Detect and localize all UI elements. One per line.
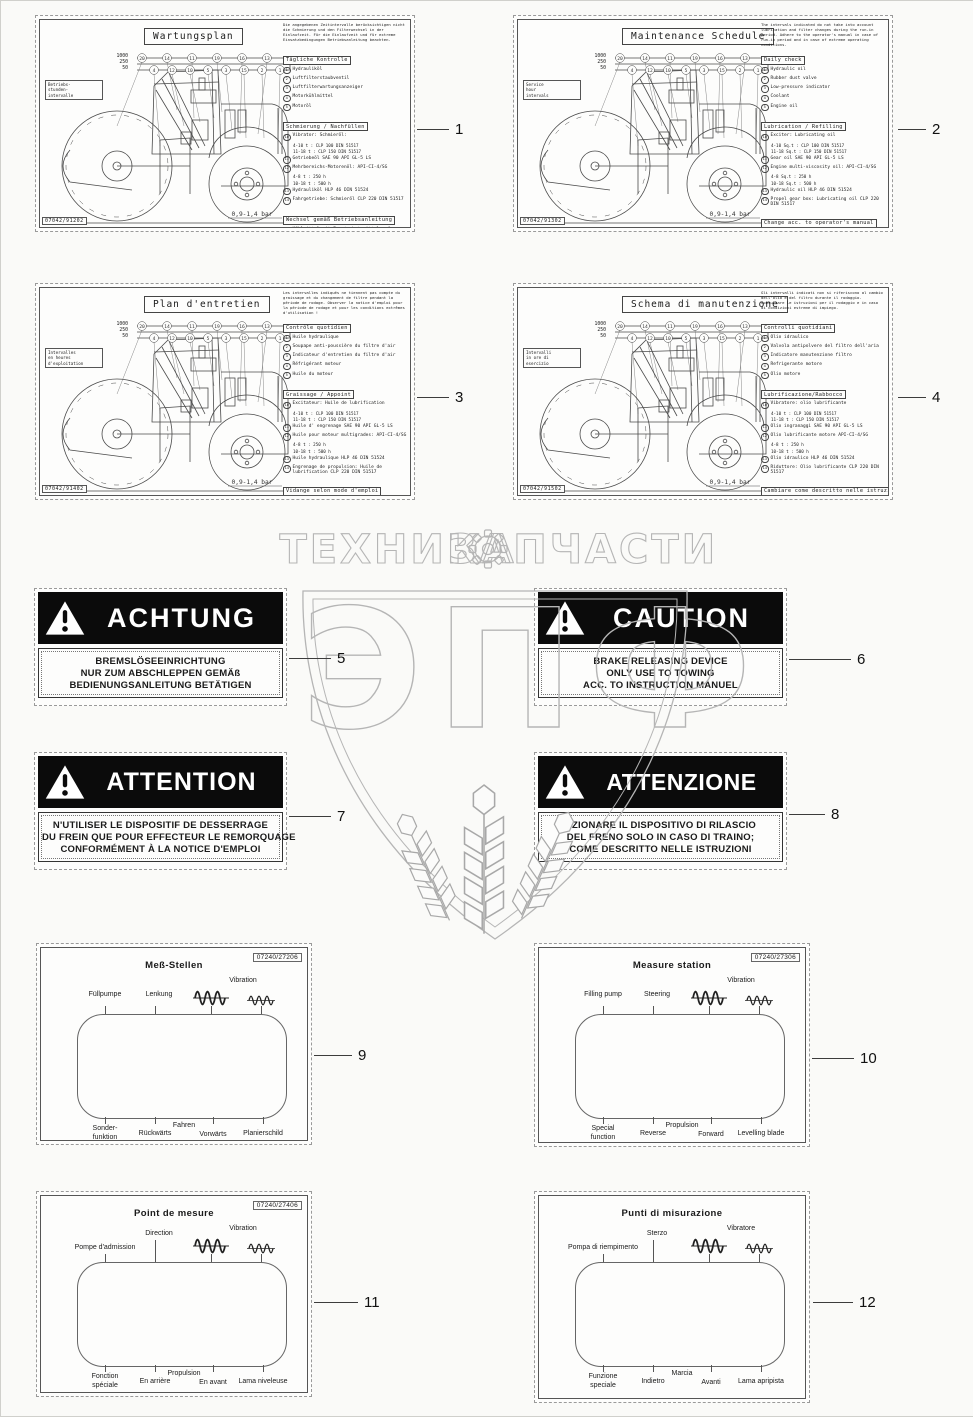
checklist-item: 14Riduttore: Olio lubrificante CLP 220 D… [761,465,885,476]
item-number: 1 [761,67,769,75]
part-code: 07042/91502 [520,485,565,493]
part-code: 07042/91202 [42,217,87,225]
measure-point-label: Steering [617,991,697,1000]
measure-point-label: Propulsion [144,1370,224,1379]
item-number: 5 [761,104,769,112]
measure-point-label: Vibratore [701,1225,781,1234]
item-text: Low-pressure indicator [771,85,831,90]
section-heading: Tägliche Kontrolle [283,56,351,65]
item-number: 13 [761,188,769,196]
item-spec-line: 10-18 t : 500 h [293,181,407,186]
warning-triangle-icon [44,763,86,801]
checklist-item: 12Engine multi-viscosity oil: API-CI-4/S… [761,165,885,173]
hours-caption: Intervalles en heures d'exploitation [45,348,103,368]
measure-point-label: Vibration [203,1225,283,1234]
item-number: 1 [761,335,769,343]
label-title: Meß-Stellen [41,960,307,971]
item-number: 11 [283,424,291,432]
item-number: 2 [283,76,291,84]
item-spec-line: 4-8 t : 250 h [293,174,407,179]
label-maintenance-it: Schema di manutenzione Gli intervalli in… [513,283,893,500]
checklist-item: 10Excitateur: Huile de lubrification [283,401,407,409]
warning-header: ATTENTION [38,756,283,808]
hours-caption: Betriebs- stunden- intervalle [45,80,103,100]
item-number: 14 [283,465,291,473]
label-warning-achtung: ACHTUNG BREMSLÖSEEINRICHTUNG NUR ZUM ABS… [34,588,287,706]
label-maintenance-en: Maintenance Schedule The intervals indic… [513,15,893,232]
item-spec-line: 4-10 t : CLP 100 DIN 51517 [771,411,885,416]
checklist-column: Daily check1Hydraulic oil2Rubber dust va… [761,46,885,228]
item-text: Engrenage de propulsion: Huile de lubrif… [293,465,408,476]
warning-line: AZIONARE IL DISPOSITIVO DI RILASCIO [542,820,779,831]
leader-line [289,816,331,817]
item-spec-line: 4-10 t : CLP 100 DIN 51517 [293,143,407,148]
label-note: Les intervalles indiqués ne tiennent pas… [283,291,407,315]
leader-line [417,129,449,130]
checklist-column: Tägliche Kontrolle1Hydrauliköl2Luftfilte… [283,46,407,228]
item-number: 14 [761,465,769,473]
callout-item-2: 2 [898,120,940,139]
item-ref-number: 7 [337,808,345,825]
machine-diagram [520,26,772,226]
tick-mark [105,1006,106,1014]
warning-line: BREMSLÖSEEINRICHTUNG [42,656,279,667]
item-text: Hydraulic oil [771,67,806,72]
checklist-column: Controlli quotidiani1Olio idraulico2Valv… [761,314,885,496]
item-number: 12 [283,433,291,441]
item-number: 13 [283,456,291,464]
section-heading: Lubrificazione/Rabbocco [761,390,846,399]
callout-item-8: 8 [789,805,839,824]
sine-wave-icon [193,1236,229,1256]
item-number: 4 [761,95,769,103]
callout-item-10: 10 [812,1049,877,1068]
item-text: Indicateur d'entretien du filtre d'air [293,353,396,358]
checklist-item: 2Soupape anti-poussière du filtre d'air [283,344,407,352]
leader-line [813,1302,853,1303]
label-title: Point de mesure [41,1208,307,1219]
checklist-item: 12Mehrbereichs-Motorenöl: API-CI-4/SG [283,165,407,173]
warning-word: ATTENTION [86,768,277,797]
item-ref-number: 9 [358,1047,366,1064]
checklist-item: 5Olio motore [761,372,885,380]
item-spec-line: 11-18 t : CLP 150 DIN 51517 [293,149,407,154]
checklist-item: 1Huile hydraulique [283,335,407,343]
checklist-item: 11Getriebeöl SAE 90 API GL-5 LS [283,156,407,164]
measure-point-label: Vibration [203,977,283,986]
item-text: Kühlmittel mit Frostschutzmittel auf Äth… [293,227,408,228]
warning-header: ACHTUNG [38,592,283,644]
warning-triangle-icon [44,599,86,637]
callout-item-7: 7 [289,807,345,826]
label-frame: Plan d'entretien Les intervalles indiqué… [39,287,411,496]
label-note: The intervals indicated do not take into… [761,23,885,47]
label-note: Die angegebenen Zeitintervalle berücksic… [283,23,407,43]
hours-value: 1000 [116,54,128,59]
item-text: Refrigerante motore [771,362,822,367]
measure-point-label: Marcia [642,1370,722,1379]
measure-point-label: Lenkung [119,991,199,1000]
console-outline [77,1014,287,1119]
item-number: 2 [761,76,769,84]
item-spec-line: 4-8 t : 250 h [771,442,885,447]
item-text: Gear oil SAE 90 API GL-5 LS [771,156,844,161]
item-text: Coolant [771,94,790,99]
item-spec-line: 11-18 t : CLP 150 DIN 51517 [771,417,885,422]
service-hours: 100025050 [96,322,128,340]
label-title: Maintenance Schedule [622,28,774,45]
label-warning-attenzione: ATTENZIONE AZIONARE IL DISPOSITIVO DI RI… [534,752,787,870]
part-code: 07042/91402 [42,485,87,493]
warning-line: N'UTILISER LE DISPOSITIF DE DESSERRAGE [42,820,279,831]
warning-line: DEL FRENO SOLO IN CASO DI TRAINO; [542,832,779,843]
item-text: Olio idraulico [771,335,809,340]
checklist-item: 12Huile pour moteur multigrades: API-CI-… [283,433,407,441]
label-title: Measure station [539,960,805,971]
item-text: Getriebeöl SAE 90 API GL-5 LS [293,156,372,161]
warning-word: ATTENZIONE [586,769,777,796]
hours-value: 1000 [116,322,128,327]
checklist-item: 14Engrenage de propulsion: Huile de lubr… [283,465,407,476]
item-number: 2 [283,344,291,352]
warning-text-box: AZIONARE IL DISPOSITIVO DI RILASCIO DEL … [538,812,783,862]
tick-mark [761,1365,762,1372]
item-text: Vibrator: Schmieröl: [293,133,347,138]
item-number: 3 [283,353,291,361]
tick-mark [263,1117,264,1124]
hours-value: 250 [597,328,606,333]
checklist-item: 15Kühlmittel mit Frostschutzmittel auf Ä… [283,227,407,228]
item-text: Hydrauliköl HLP 46 DIN 51524 [293,188,369,193]
hours-value: 50 [122,334,128,339]
machine-diagram [42,294,294,494]
tick-mark [105,1365,106,1372]
label-measure-de: 07240/27206 Meß-Stellen Füllpumpe Lenkun… [36,943,312,1145]
item-text: Luftfilterstaubventil [293,76,350,81]
hours-value: 250 [119,60,128,65]
item-text: Huile du moteur [293,372,334,377]
checklist-item: 4Coolant [761,94,885,102]
item-text: Mehrbereichs-Motorenöl: API-CI-4/SG [293,165,388,170]
item-text: Vibratore: olio lubrificante [771,401,847,406]
hours-value: 1000 [594,322,606,327]
checklist-item: 3Low-pressure indicator [761,85,885,93]
item-text: Valvola antipolvere del filtro dell'aria [771,344,879,349]
item-text: Excitateur: Huile de lubrification [293,401,385,406]
item-number: 3 [761,353,769,361]
item-number: 10 [761,402,769,410]
checklist-item: 3Indicateur d'entretien du filtre d'air [283,353,407,361]
warning-line: BEDIENUNGSANLEITUNG BETÄTIGEN [42,680,279,691]
item-ref-number: 8 [831,806,839,823]
hours-value: 250 [597,60,606,65]
warning-text-box: BRAKE RELEASING DEVICE ONLY USE TO TOWIN… [538,648,783,698]
tick-mark [105,1254,106,1262]
item-spec-line: 4-10 t : CLP 100 DIN 51517 [293,411,407,416]
item-text: Soupape anti-poussière du filtre d'air [293,344,396,349]
leader-line [314,1055,352,1056]
tick-mark [759,1254,760,1262]
label-frame: Schema di manutenzione Gli intervalli in… [517,287,889,496]
warning-word: CAUTION [586,603,777,634]
tick-mark [261,1006,262,1014]
item-spec-line: 11-18 Sq.t : CLP 150 DIN 51517 [771,149,885,154]
item-ref-number: 11 [364,1294,380,1311]
tick-mark [603,1117,604,1124]
label-title: Punti di misurazione [539,1208,805,1219]
checklist-item: 1Olio idraulico [761,335,885,343]
sine-wave-icon [691,1236,727,1256]
callout-item-3: 3 [417,388,463,407]
warning-triangle-icon [544,599,586,637]
warning-line: DU FREIN QUE POUR EFFECTEUR LE REMORQUAG… [42,832,279,843]
callout-item-12: 12 [813,1293,876,1312]
section-heading: Wechsel gemäß Betriebsanleitung [283,216,395,225]
item-number: 15 [283,227,291,228]
item-number: 12 [761,433,769,441]
service-hours: 100025050 [574,322,606,340]
warning-line: ACC. TO INSTRUCTION MANUEL [542,680,779,691]
hours-value: 50 [600,66,606,71]
section-heading: Vidange selon mode d'emploi [283,487,381,496]
item-spec-line: 11-18 t : CLP 150 DIN 51517 [293,417,407,422]
gear-icon [469,530,507,568]
item-number: 12 [283,165,291,173]
item-spec-line: 10-18 t : 500 h [293,449,407,454]
warning-text-box: N'UTILISER LE DISPOSITIF DE DESSERRAGE D… [38,812,283,862]
measure-point-label: Levelling blade [711,1130,811,1139]
measure-point-label: Pompa di riempimento [553,1244,653,1253]
item-number: 14 [761,197,769,205]
leader-line [898,397,926,398]
label-frame: 07240/27406 Point de mesure Pompe d'admi… [40,1195,308,1393]
item-ref-number: 6 [857,651,865,668]
item-number: 11 [283,156,291,164]
item-text: Huile pour moteur multigrades: API-CI-4/… [293,433,407,438]
leader-line [289,658,331,659]
callout-item-9: 9 [314,1046,366,1065]
tick-mark [105,1117,106,1124]
label-measure-it: Punti di misurazione Pompa di riempiment… [534,1191,810,1403]
checklist-item: 4Réfrigérant moteur [283,362,407,370]
tick-mark [709,1006,710,1014]
item-ref-number: 10 [860,1050,877,1067]
item-text: Propel gear box: Lubricating oil CLP 220… [771,197,886,208]
item-text: Olio idraulico HLP 46 DIN 51524 [771,456,855,461]
item-text: Motoröl [293,104,312,109]
leader-line [789,659,851,660]
callout-item-1: 1 [417,120,463,139]
hours-caption: Service hour intervals [523,80,581,100]
watermark-word-left: ТЕХНИКА [279,527,516,573]
machine-diagram [42,26,294,226]
checklist-item: 11Huile d' engrenage SAE 90 API GL-5 LS [283,424,407,432]
item-text: Exciter: Lubricating oil [771,133,836,138]
part-code: 07042/91302 [520,217,565,225]
item-ref-number: 12 [859,1294,876,1311]
warning-word: ACHTUNG [86,603,277,634]
service-hours: 100025050 [96,54,128,72]
checklist-column: Contrôle quotidien1Huile hydraulique2Sou… [283,314,407,496]
item-text: Rubber dust valve [771,76,817,81]
leader-line [314,1302,358,1303]
section-heading: Lubrication / Refilling [761,122,846,131]
label-frame: Punti di misurazione Pompa di riempiment… [538,1195,806,1399]
checklist-item: 14Propel gear box: Lubricating oil CLP 2… [761,197,885,208]
tick-mark [263,1365,264,1372]
sine-wave-icon [691,988,727,1008]
warning-line: COME DESCRITTO NELLE ISTRUZIONI [542,844,779,855]
checklist-item: 14Fahrgetriebe: Schmieröl CLP 220 DIN 51… [283,197,407,205]
item-text: Indicatore manutenzione filtro [771,353,852,358]
checklist-item: 1Hydraulic oil [761,67,885,75]
measure-point-label: Sterzo [617,1230,697,1239]
item-text: Huile hydraulique [293,335,339,340]
measure-point-label: Lama apripista [711,1378,811,1387]
section-heading: Contrôle quotidien [283,324,351,333]
section-heading: Change acc. to operator's manual [761,219,877,228]
label-frame: Wartungsplan Die angegebenen Zeitinterva… [39,19,411,228]
checklist-item: 10Exciter: Lubricating oil [761,133,885,141]
label-warning-caution: CAUTION BRAKE RELEASING DEVICE ONLY USE … [534,588,787,706]
checklist-item: 12Olio lubrificante motore API-CI-4/SG [761,433,885,441]
item-number: 5 [283,104,291,112]
checklist-item: 10Vibrator: Schmieröl: [283,133,407,141]
item-spec-line: 4-8 t : 250 h [293,442,407,447]
item-number: 5 [761,372,769,380]
tick-mark [211,1254,212,1262]
item-number: 3 [283,85,291,93]
item-ref-number: 3 [455,389,463,406]
checklist-item: 13Hydraulic oil HLP 46 DIN 51524 [761,188,885,196]
label-title: Wartungsplan [144,28,243,45]
item-number: 4 [283,363,291,371]
section-heading: Controlli quotidiani [761,324,835,333]
warning-header: CAUTION [538,592,783,644]
label-warning-attention: ATTENTION N'UTILISER LE DISPOSITIF DE DE… [34,752,287,870]
callout-item-6: 6 [789,650,865,669]
tick-mark [709,1254,710,1262]
item-spec-line: 4-10 Sq.t : CLP 100 DIN 51517 [771,143,885,148]
machine-diagram [520,294,772,494]
item-ref-number: 5 [337,650,345,667]
item-number: 1 [283,67,291,75]
item-ref-number: 2 [932,121,940,138]
service-hours: 100025050 [574,54,606,72]
item-text: Fahrgetriebe: Schmieröl CLP 220 DIN 5151… [293,197,404,202]
catalog-page: Wartungsplan Die angegebenen Zeitinterva… [0,0,973,1417]
item-number: 10 [283,134,291,142]
checklist-item: 10Vibratore: olio lubrificante [761,401,885,409]
warning-line: NUR ZUM ABSCHLEPPEN GEMÄß [42,668,279,679]
item-number: 5 [283,372,291,380]
label-note: Gli intervalli indicati non si riferisco… [761,291,885,311]
item-text: Engine oil [771,104,798,109]
section-heading: Cambiare come descritto nelle istruzioni [761,487,889,496]
item-spec-line: 4-8 Sq.t : 250 h [771,174,885,179]
measure-point-label: Lama niveleuse [213,1378,313,1387]
item-ref-number: 1 [455,121,463,138]
item-text: Olio ingranaggi SAE 90 API GL-5 LS [771,424,863,429]
item-number: 14 [283,197,291,205]
tick-mark [761,1117,762,1124]
item-text: Hydrauliköl [293,67,323,72]
watermark-word-right: ЗАПЧАСТИ [448,527,718,573]
warning-triangle-icon [544,763,586,801]
leader-line [898,129,926,130]
warning-line: CONFORMÉMENT À LA NOTICE D'EMPLOI [42,844,279,855]
callout-item-4: 4 [898,388,940,407]
checklist-item: 5Huile du moteur [283,372,407,380]
console-outline [77,1262,287,1367]
checklist-item: 5Engine oil [761,104,885,112]
checklist-item: 13Hydrauliköl HLP 46 DIN 51524 [283,188,407,196]
checklist-item: 11Olio ingranaggi SAE 90 API GL-5 LS [761,424,885,432]
item-text: Réfrigérant moteur [293,362,342,367]
item-text: Huile d' engrenage SAE 90 API GL-5 LS [293,424,393,429]
measure-point-label: Fahren [144,1122,224,1131]
item-number: 3 [761,85,769,93]
section-heading: Daily check [761,56,805,65]
item-number: 13 [761,456,769,464]
checklist-item: 4Motorkühlmittel [283,94,407,102]
checklist-item: 3Luftfilterwartungsanzeiger [283,85,407,93]
label-frame: 07240/27206 Meß-Stellen Füllpumpe Lenkun… [40,947,308,1141]
callout-item-5: 5 [289,649,345,668]
checklist-item: 3Indicatore manutenzione filtro [761,353,885,361]
console-outline [575,1014,785,1119]
item-spec-line: 10-18 t : 500 h [771,449,885,454]
hours-value: 50 [600,334,606,339]
warning-line: ONLY USE TO TOWING [542,668,779,679]
label-maintenance-de: Wartungsplan Die angegebenen Zeitinterva… [35,15,415,232]
checklist-item: 5Motoröl [283,104,407,112]
tick-mark [603,1365,604,1372]
checklist-item: 4Refrigerante motore [761,362,885,370]
leader-line [812,1058,854,1059]
measure-point-label: Planierschild [213,1130,313,1139]
item-text: Riduttore: Olio lubrificante CLP 220 DIN… [771,465,886,476]
callout-item-11: 11 [314,1293,380,1312]
item-number: 1 [283,335,291,343]
tick-mark [603,1254,604,1262]
item-text: Engine multi-viscosity oil: API-CI-4/SG [771,165,877,170]
tick-mark [759,1006,760,1014]
item-text: Olio lubrificante motore API-CI-4/SG [771,433,869,438]
item-number: 12 [761,165,769,173]
checklist-item: 2Valvola antipolvere del filtro dell'ari… [761,344,885,352]
item-text: Motorkühlmittel [293,94,334,99]
checklist-item: 11Gear oil SAE 90 API GL-5 LS [761,156,885,164]
item-text: Hydraulic oil HLP 46 DIN 51524 [771,188,852,193]
item-number: 4 [761,363,769,371]
hours-value: 50 [122,66,128,71]
tick-mark [653,1006,654,1014]
label-frame: 07240/27306 Measure station Filling pump… [538,947,806,1143]
label-title: Plan d'entretien [144,296,270,313]
leader-line [789,814,825,815]
label-maintenance-fr: Plan d'entretien Les intervalles indiqué… [35,283,415,500]
item-ref-number: 4 [932,389,940,406]
measure-point-label: Pompe d'admission [55,1244,155,1253]
checklist-item: 2Luftfilterstaubventil [283,76,407,84]
item-number: 11 [761,156,769,164]
measure-point-label: Vibration [701,977,781,986]
warning-header: ATTENZIONE [538,756,783,808]
section-heading: Graissage / Appoint [283,390,354,399]
warning-line: BRAKE RELEASING DEVICE [542,656,779,667]
leader-line [417,397,449,398]
